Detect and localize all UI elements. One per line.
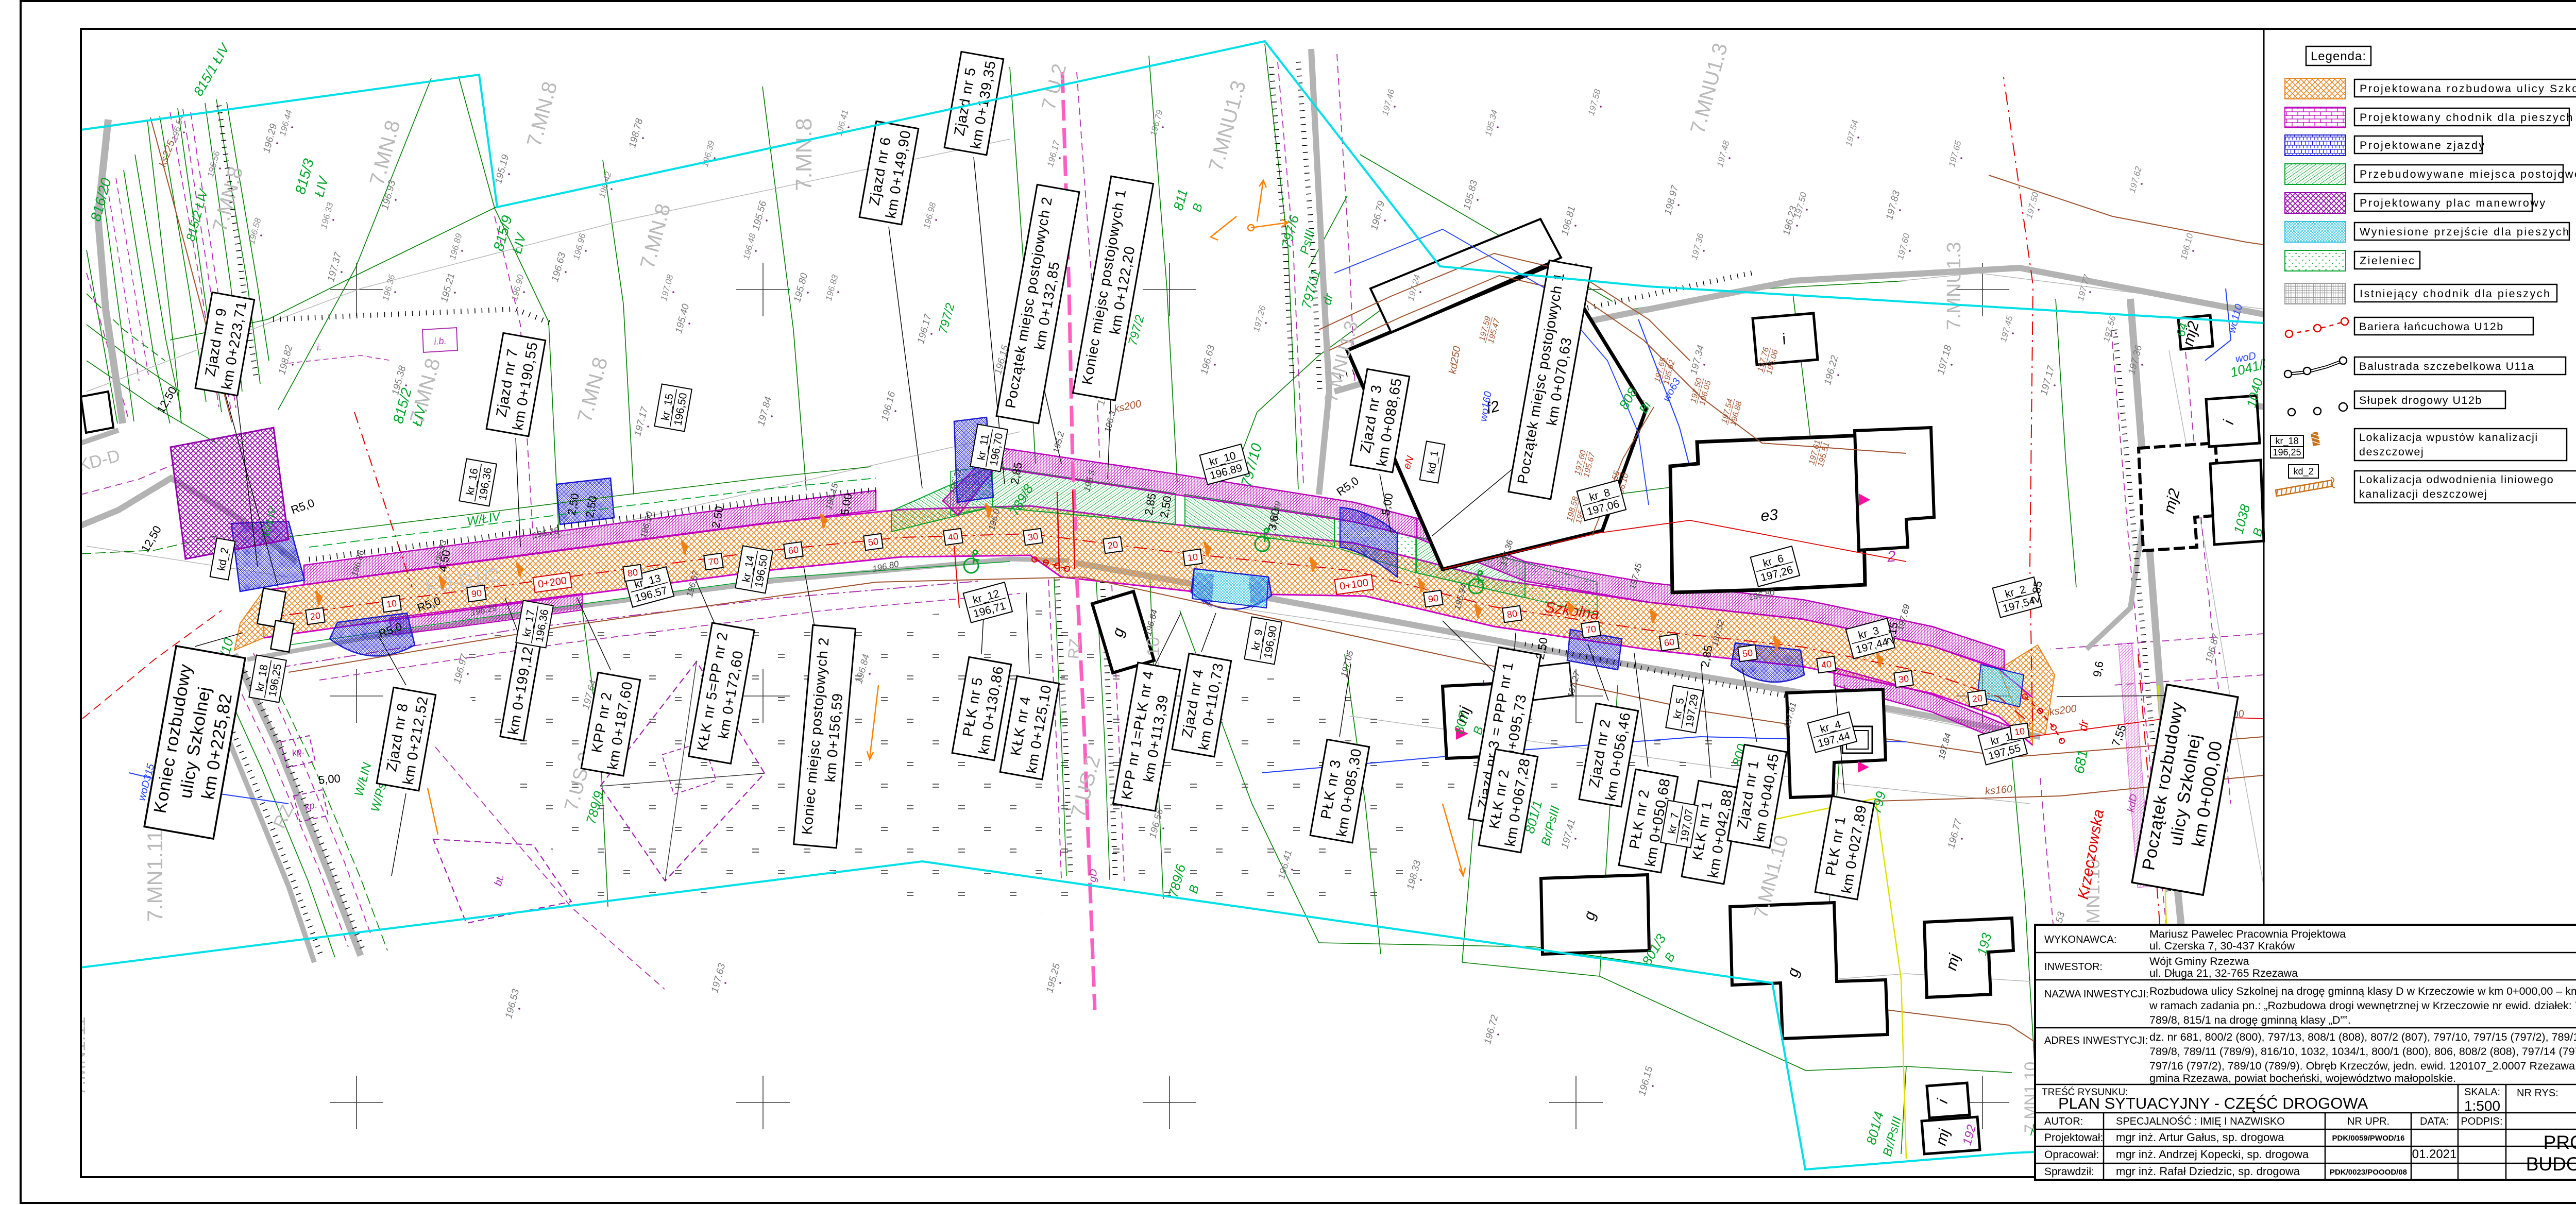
svg-text:Zieleniec: Zieleniec [2360,254,2416,267]
svg-text:10: 10 [1187,552,1199,564]
svg-text:Projektowana rozbudowa ulicy S: Projektowana rozbudowa ulicy Szkolnej [2360,82,2576,95]
svg-text:mgr inż. Rafał Dziedzic, sp. d: mgr inż. Rafał Dziedzic, sp. drogowa [2116,1165,2300,1178]
svg-text:Lokalizacja odwodnienia liniow: Lokalizacja odwodnienia liniowego [2359,473,2554,486]
svg-text:SKALA:: SKALA: [2464,1087,2500,1098]
svg-text:SPECJALNOŚĆ : IMIĘ I NAZWISKO: SPECJALNOŚĆ : IMIĘ I NAZWISKO [2116,1115,2285,1127]
svg-text:Rozbudowa ulicy Szkolnej na dr: Rozbudowa ulicy Szkolnej na drogę gminną… [2149,985,2576,997]
svg-text:7.MNU1.3: 7.MNU1.3 [1943,242,1965,330]
svg-text:10: 10 [386,598,398,610]
svg-text:ADRES INWESTYCJI:: ADRES INWESTYCJI: [2044,1035,2148,1046]
svg-text:ks160: ks160 [1985,784,2013,797]
svg-text:DATA:: DATA: [2420,1116,2449,1127]
svg-text:PDK/0059/PWOD/16: PDK/0059/PWOD/16 [2332,1134,2405,1143]
svg-text:Przebudowywane miejsca postojo: Przebudowywane miejsca postojowe [2360,168,2576,180]
svg-text:70: 70 [708,556,720,568]
svg-text:PROJEKT: PROJEKT [2544,1132,2576,1153]
svg-text:9,6: 9,6 [2091,660,2106,677]
svg-text:PLAN SYTUACYJNY - CZĘŚĆ DROGOW: PLAN SYTUACYJNY - CZĘŚĆ DROGOWA [2058,1094,2368,1112]
svg-text:01.2021: 01.2021 [2412,1147,2457,1161]
svg-text:Projektowane zjazdy: Projektowane zjazdy [2360,139,2486,151]
svg-text:789/8, 815/1 na drogę gminną k: 789/8, 815/1 na drogę gminną klasy „D””. [2149,1014,2351,1026]
svg-text:2: 2 [1886,548,1896,565]
svg-text:Opracował:: Opracował: [2044,1149,2099,1161]
svg-text:196,25: 196,25 [2273,447,2301,457]
svg-text:w ramach zadania pn.: „Rozbudo: w ramach zadania pn.: „Rozbudowa drogi w… [2149,999,2576,1012]
svg-text:Wójt Gminy Rzezwa: Wójt Gminy Rzezwa [2149,955,2249,968]
svg-text:Wyniesione przejście dla piesz: Wyniesione przejście dla pieszych [2360,226,2570,238]
svg-text:40: 40 [947,531,959,543]
svg-text:deszczowej: deszczowej [2359,446,2424,458]
svg-text:20: 20 [1107,539,1119,551]
svg-text:ul. Długa 21, 32-765 Rzezawa: ul. Długa 21, 32-765 Rzezawa [2149,967,2298,979]
svg-text:90: 90 [1428,593,1439,605]
svg-text:Projektowany plac manewrowy: Projektowany plac manewrowy [2360,197,2547,209]
svg-text:Legenda:: Legenda: [2311,49,2366,63]
svg-text:90: 90 [471,588,483,600]
svg-text:Lokalizacja wpustów kanalizacj: Lokalizacja wpustów kanalizacji [2359,431,2538,444]
svg-text:7.MN.8: 7.MN.8 [791,118,817,191]
svg-text:80: 80 [1506,608,1518,620]
svg-text:Projektowany chodnik dla piesz: Projektowany chodnik dla pieszych [2360,111,2574,124]
svg-text:kd_2: kd_2 [2293,466,2313,477]
svg-text:Projektował:: Projektował: [2044,1132,2103,1144]
svg-text:10: 10 [2014,726,2026,738]
svg-text:50: 50 [868,536,879,548]
svg-text:70: 70 [1585,624,1597,636]
svg-text:mgr inż. Artur Gałus, sp. drog: mgr inż. Artur Gałus, sp. drogowa [2116,1131,2284,1144]
svg-text:gD: gD [1087,869,1099,882]
svg-text:PDK/0023/POOOD/08: PDK/0023/POOOD/08 [2330,1168,2407,1177]
svg-text:1:500: 1:500 [2464,1098,2500,1114]
svg-text:60: 60 [788,545,800,556]
svg-text:mgr inż. Andrzej Kopecki, sp.: mgr inż. Andrzej Kopecki, sp. drogowa [2116,1148,2309,1161]
svg-text:7.MN1.11: 7.MN1.11 [143,830,167,922]
svg-text:5,00: 5,00 [318,772,341,787]
svg-text:20: 20 [310,610,321,622]
svg-text:80: 80 [627,567,639,579]
svg-text:Mariusz Pawelec Pracownia Proj: Mariusz Pawelec Pracownia Projektowa [2149,928,2346,940]
svg-text:gmina Rzezawa, powiat bocheńsk: gmina Rzezawa, powiat bocheński, wojewód… [2149,1072,2456,1084]
svg-text:30: 30 [1898,673,1910,685]
svg-text:NR RYS:: NR RYS: [2517,1088,2558,1099]
svg-text:30: 30 [1027,531,1039,543]
svg-text:Słupek drogowy U12b: Słupek drogowy U12b [2359,394,2482,406]
svg-text:NAZWA INWESTYCJI:: NAZWA INWESTYCJI: [2044,989,2149,1000]
svg-text:dz. nr 681, 800/2 (800), 797/1: dz. nr 681, 800/2 (800), 797/13, 808/1 (… [2149,1031,2576,1043]
svg-text:20: 20 [1972,693,1984,705]
svg-text:ul. Czerska 7, 30-437 Kraków: ul. Czerska 7, 30-437 Kraków [2149,940,2295,952]
svg-text:i.b.: i.b. [434,335,447,347]
svg-text:Istniejący chodnik dla pieszyc: Istniejący chodnik dla pieszych [2360,287,2551,300]
svg-text:Balustrada szczebelkowa U11a: Balustrada szczebelkowa U11a [2359,360,2534,372]
svg-text:INWESTOR:: INWESTOR: [2044,961,2103,973]
svg-text:797/16 (797/2), 789/10 (789/9): 797/16 (797/2), 789/10 (789/9). Obręb Kr… [2149,1060,2576,1072]
svg-text:i.: i. [316,342,322,353]
svg-text:Sprawdził:: Sprawdził: [2044,1166,2094,1178]
svg-text:AUTOR:: AUTOR: [2044,1116,2083,1127]
svg-text:NR UPR.: NR UPR. [2347,1116,2389,1127]
svg-text:50: 50 [1742,648,1754,659]
svg-text:kr_18: kr_18 [2275,436,2298,447]
svg-text:e3: e3 [1760,506,1778,525]
svg-text:789/8, 789/11 (789/9), 816/10,: 789/8, 789/11 (789/9), 816/10, 1032, 103… [2149,1045,2576,1058]
svg-text:RZ: RZ [1065,638,1083,660]
svg-text:PODPIS:: PODPIS: [2461,1116,2502,1127]
svg-text:60: 60 [1664,637,1675,649]
svg-text:kanalizacji deszczowej: kanalizacji deszczowej [2359,488,2487,500]
svg-text:Bariera łańcuchowa U12b: Bariera łańcuchowa U12b [2359,320,2504,333]
svg-text:BUDOWLANY: BUDOWLANY [2526,1153,2576,1175]
svg-text:WYKONAWCA:: WYKONAWCA: [2044,934,2116,945]
svg-text:40: 40 [1821,659,1833,671]
